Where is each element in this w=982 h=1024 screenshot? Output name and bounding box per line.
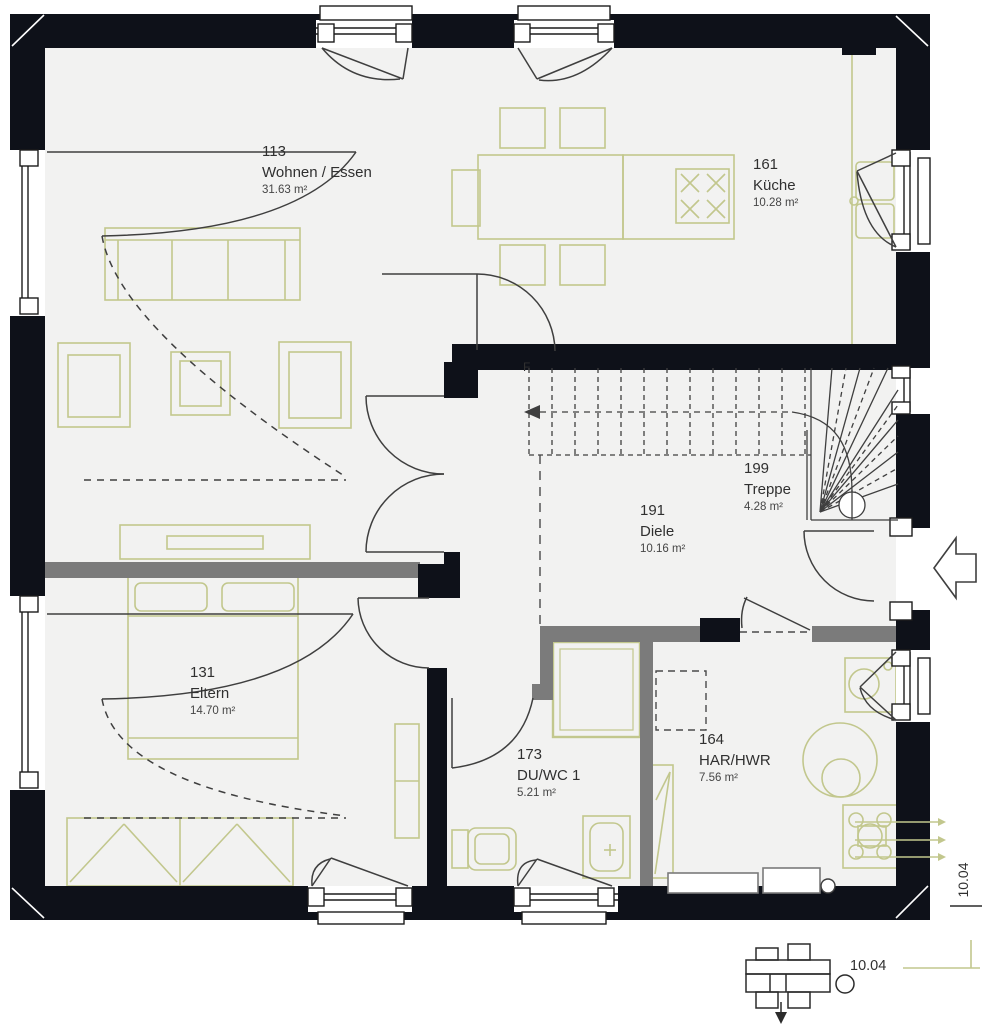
room-label-duwc: 173 DU/WC 1 5.21 m² <box>517 744 580 801</box>
drain-circle <box>821 879 835 893</box>
floor-plan: 113 Wohnen / Essen 31.63 m² 161 Küche 10… <box>0 0 982 1024</box>
french-door-left-1 <box>10 150 45 316</box>
room-area: 5.21 m² <box>517 786 580 801</box>
entrance-opening <box>890 518 930 620</box>
floor-area <box>10 14 930 920</box>
room-name: HAR/HWR <box>699 750 771 771</box>
room-name: Diele <box>640 521 685 542</box>
room-name: Treppe <box>744 479 791 500</box>
dimension-detail: 10.04 <box>850 958 886 974</box>
down-arrow <box>775 1012 787 1024</box>
dimension-right-edge: 10.04 <box>955 850 971 910</box>
room-name: Küche <box>753 175 798 196</box>
entrance-arrow <box>934 538 976 598</box>
window-bottom-1 <box>308 886 412 924</box>
room-label-wohnen: 113 Wohnen / Essen 31.63 m² <box>262 141 372 198</box>
room-area: 14.70 m² <box>190 704 235 719</box>
room-name: Wohnen / Essen <box>262 162 372 183</box>
room-label-eltern: 131 Eltern 14.70 m² <box>190 662 235 719</box>
room-number: 164 <box>699 729 771 750</box>
room-number: 161 <box>753 154 798 175</box>
chimney <box>842 16 876 55</box>
room-label-diele: 191 Diele 10.16 m² <box>640 500 685 557</box>
room-number: 173 <box>517 744 580 765</box>
window-right-kitchen <box>892 150 930 252</box>
french-door-left-2 <box>10 596 45 790</box>
room-number: 199 <box>744 458 791 479</box>
room-number: 191 <box>640 500 685 521</box>
room-number: 113 <box>262 141 372 162</box>
room-area: 31.63 m² <box>262 183 372 198</box>
room-number: 131 <box>190 662 235 683</box>
window-top-1 <box>316 6 412 48</box>
room-area: 7.56 m² <box>699 771 771 786</box>
window-top-2 <box>514 6 614 48</box>
room-area: 4.28 m² <box>744 500 791 515</box>
stair-mark-label: F <box>523 360 530 374</box>
room-label-kueche: 161 Küche 10.28 m² <box>753 154 798 211</box>
window-right-har <box>892 650 930 722</box>
room-label-har: 164 HAR/HWR 7.56 m² <box>699 729 771 786</box>
room-area: 10.28 m² <box>753 196 798 211</box>
window-bottom-2 <box>514 886 618 924</box>
floor-plan-drawing <box>0 0 982 1024</box>
room-name: Eltern <box>190 683 235 704</box>
room-area: 10.16 m² <box>640 542 685 557</box>
room-name: DU/WC 1 <box>517 765 580 786</box>
room-label-treppe: 199 Treppe 4.28 m² <box>744 458 791 515</box>
